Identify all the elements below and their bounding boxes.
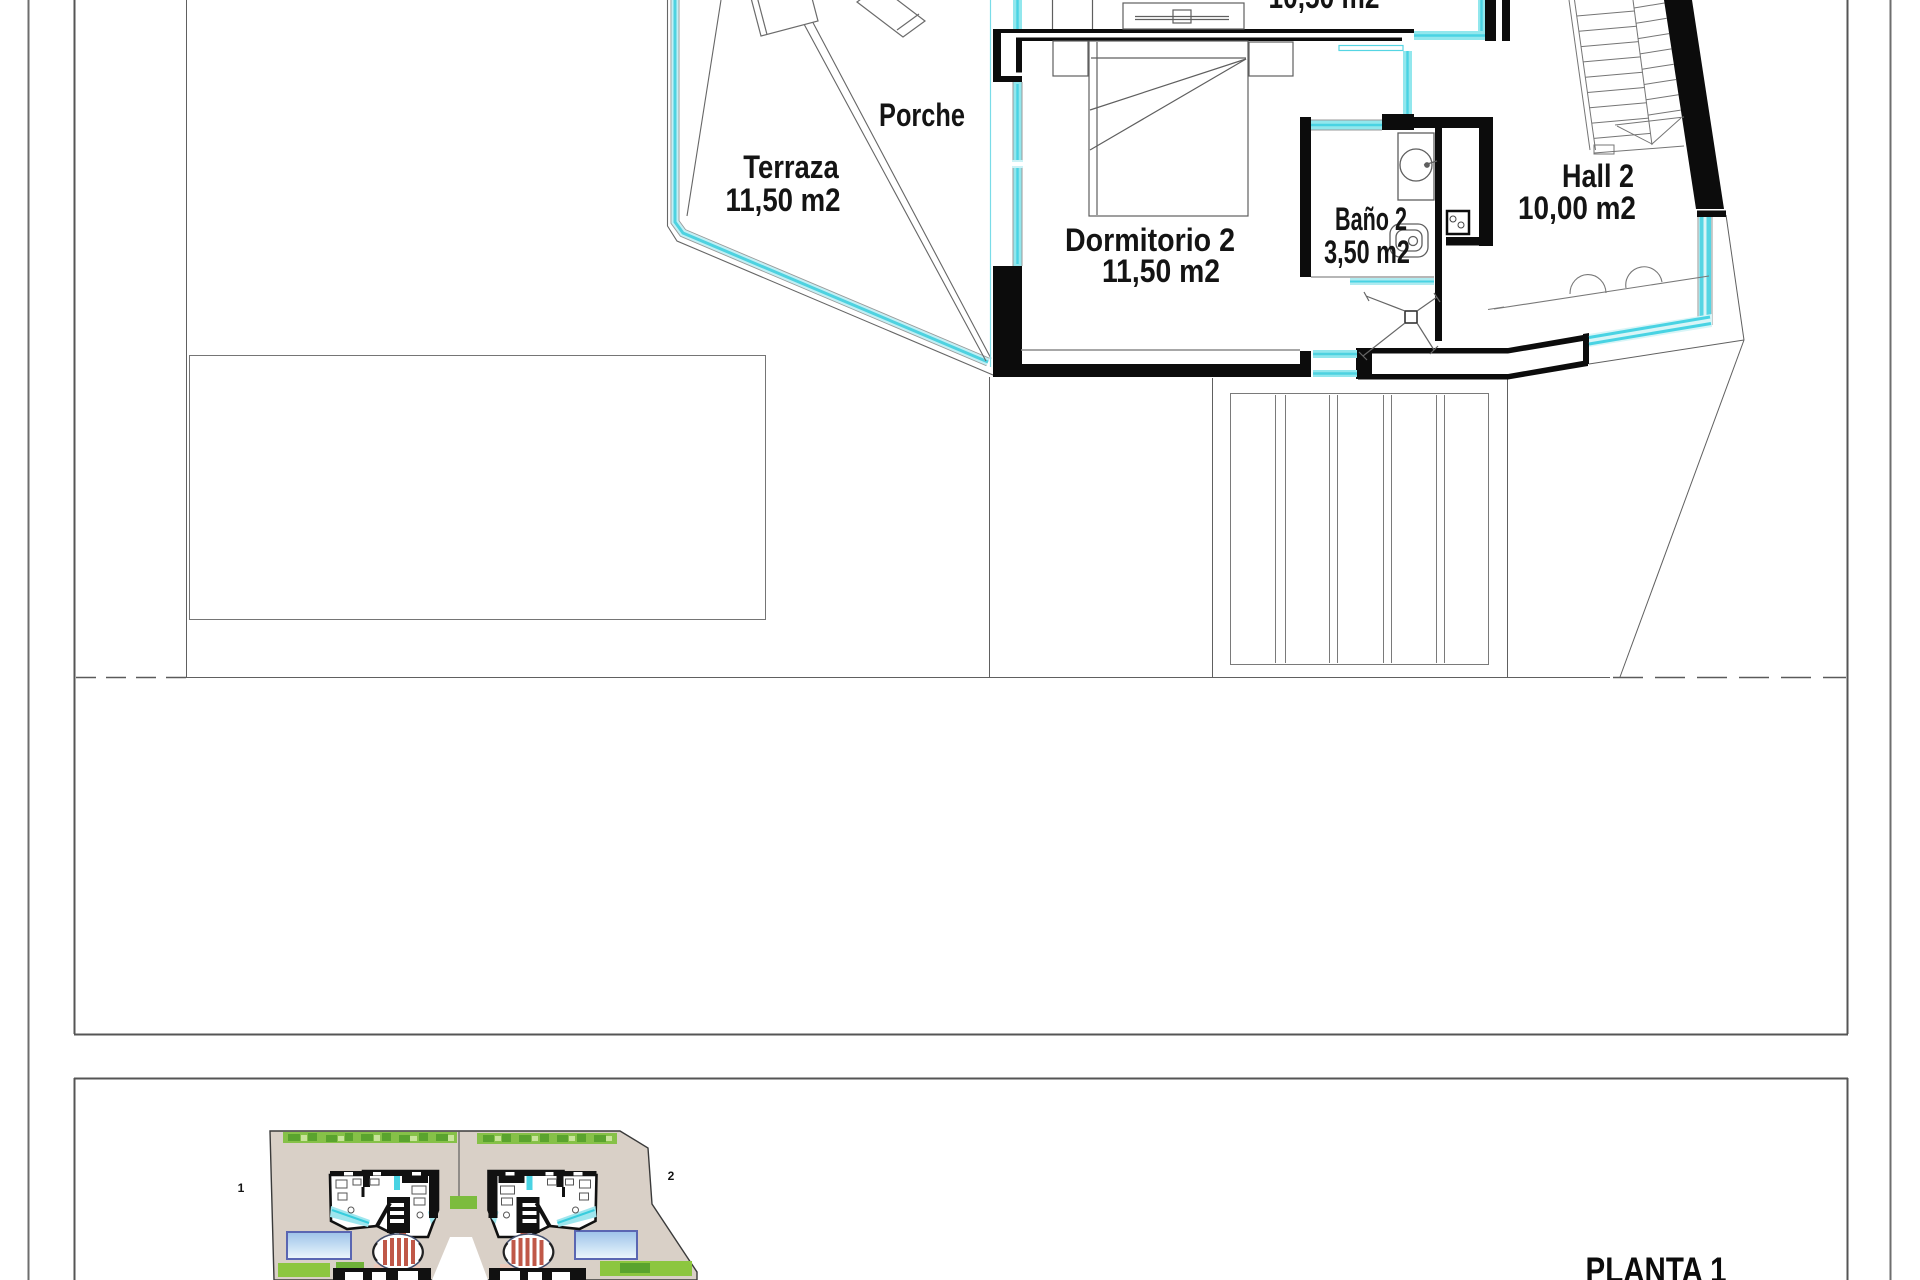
svg-text:Porche: Porche: [879, 98, 965, 134]
svg-text:3,50 m2: 3,50 m2: [1324, 233, 1410, 270]
svg-text:PLANTA 1: PLANTA 1: [1586, 1251, 1727, 1280]
svg-text:Hall 2: Hall 2: [1562, 159, 1634, 195]
svg-text:2: 2: [668, 1169, 675, 1183]
svg-text:Terraza: Terraza: [743, 150, 839, 186]
svg-text:11,50 m2: 11,50 m2: [1102, 253, 1220, 289]
svg-text:Baño 2: Baño 2: [1335, 201, 1407, 238]
svg-text:10,50 m2: 10,50 m2: [1269, 0, 1380, 16]
svg-text:11,50 m2: 11,50 m2: [726, 183, 841, 219]
svg-text:10,00 m2: 10,00 m2: [1518, 191, 1636, 226]
svg-text:1: 1: [238, 1181, 245, 1195]
